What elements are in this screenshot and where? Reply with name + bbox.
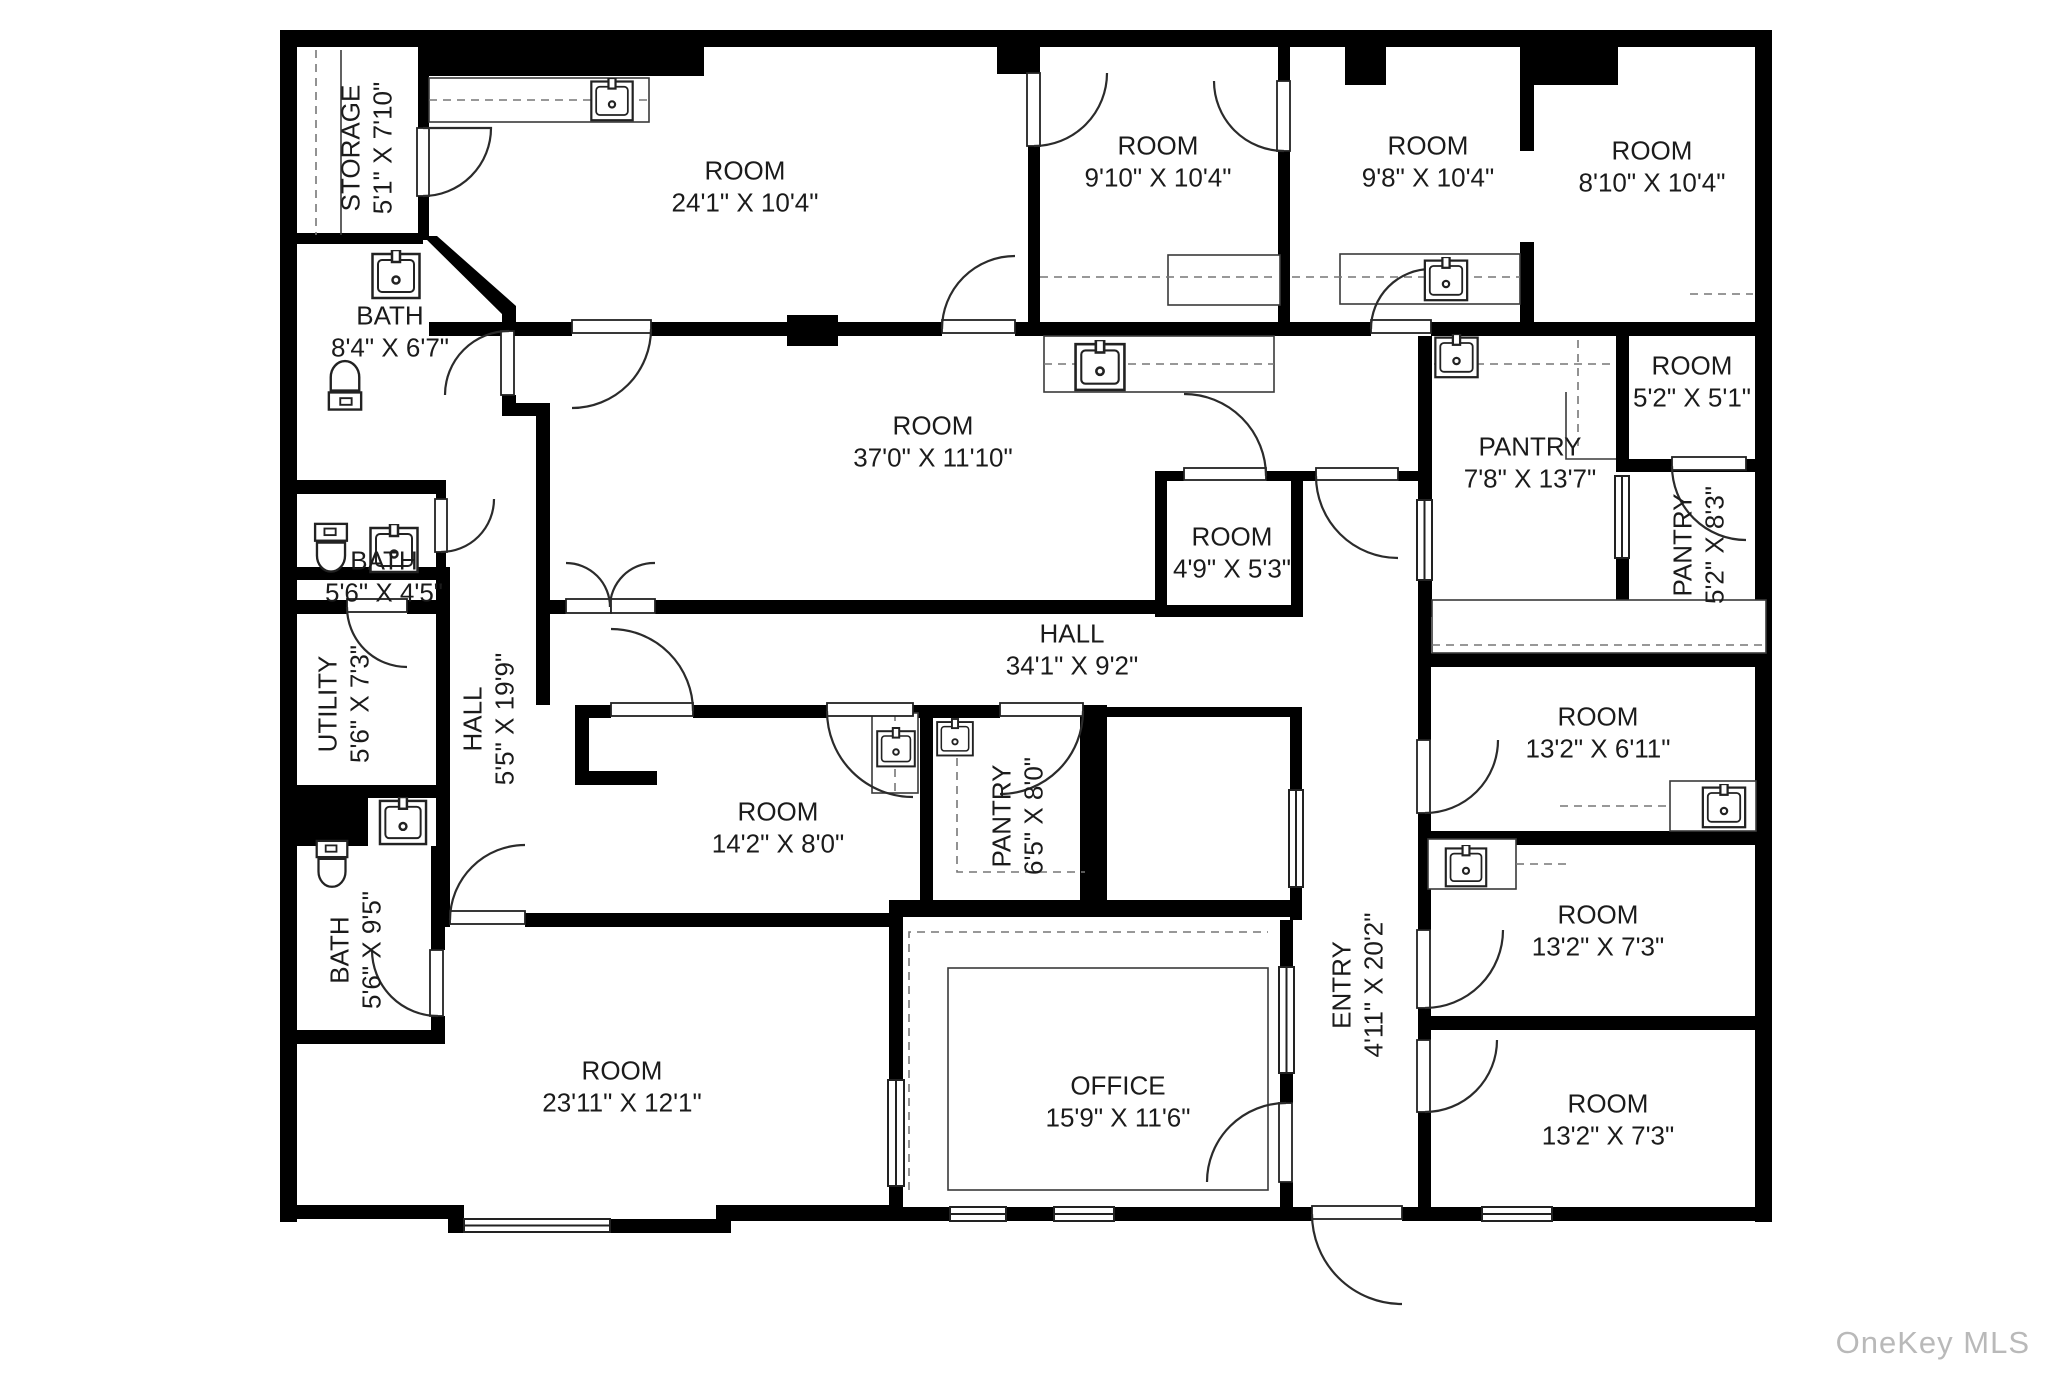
doors-layer bbox=[347, 73, 1746, 1304]
sink-icon bbox=[373, 250, 420, 298]
window-icon bbox=[1615, 476, 1629, 558]
sink-icon bbox=[1446, 845, 1486, 886]
door-swing-arcs bbox=[347, 73, 1746, 1304]
toilet-icon bbox=[317, 841, 348, 887]
sink-icon bbox=[1703, 784, 1745, 827]
window-icon bbox=[1482, 1207, 1552, 1221]
floor-plan-drawing bbox=[0, 0, 2048, 1375]
sink-icon bbox=[1435, 334, 1477, 377]
sink-icon bbox=[371, 524, 418, 572]
sink-icon bbox=[591, 78, 632, 120]
floor-plan-page: STORAGE5'1" X 7'10"ROOM24'1" X 10'4"ROOM… bbox=[0, 0, 2048, 1375]
watermark: OneKey MLS bbox=[1836, 1325, 2030, 1361]
toilet-icon bbox=[329, 361, 361, 409]
sink-icon bbox=[380, 797, 426, 844]
window-icon bbox=[1279, 967, 1294, 1073]
window-icon bbox=[1289, 790, 1303, 887]
window-icon bbox=[888, 1080, 904, 1186]
sink-icon bbox=[1425, 257, 1467, 300]
window-icon bbox=[1417, 500, 1432, 580]
toilet-icon bbox=[315, 524, 347, 572]
window-icon bbox=[950, 1207, 1006, 1221]
sink-icon bbox=[877, 728, 915, 766]
sink-icon bbox=[1076, 340, 1125, 390]
sink-icon bbox=[937, 719, 973, 755]
window-icon bbox=[1054, 1207, 1114, 1221]
window-icon bbox=[464, 1219, 610, 1232]
